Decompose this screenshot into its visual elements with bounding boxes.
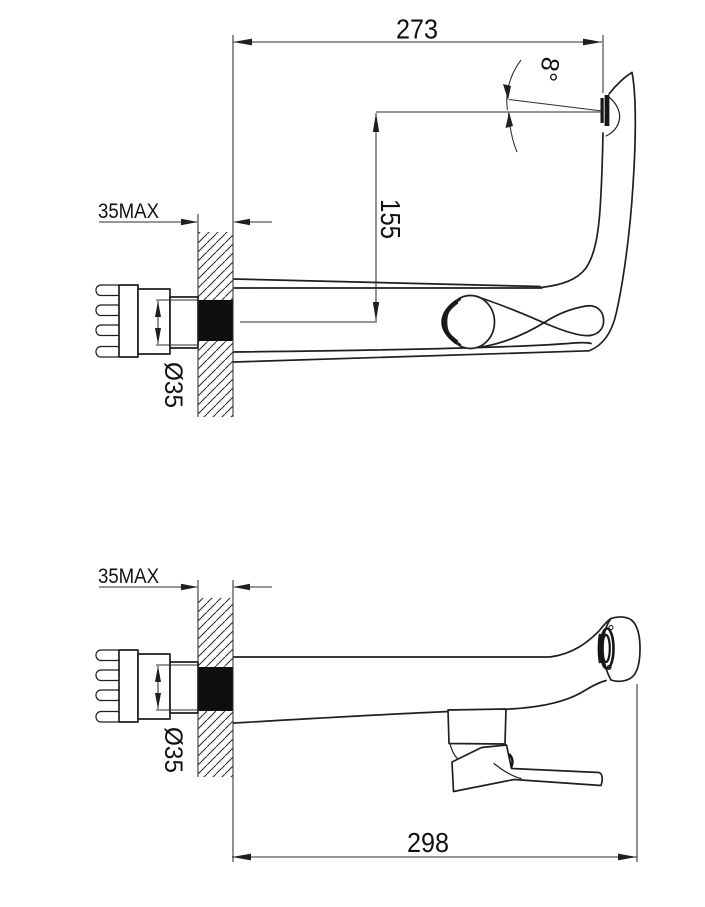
handle-blade-end-cap [586, 306, 604, 336]
faucet-body [234, 73, 635, 363]
dimension-35max-bottom: 35MAX [98, 564, 272, 590]
dim-diameter-label: Ø35 [159, 727, 187, 773]
valve-assembly [96, 650, 198, 722]
riser-outer-edge [589, 73, 635, 351]
angle-arc-upper [507, 60, 521, 110]
dimension-angle-8deg: 8° [503, 55, 602, 152]
dim-length-label: 298 [407, 827, 449, 858]
dim-width-label: 273 [396, 14, 438, 45]
handle-outline [452, 745, 602, 792]
connector-neck [170, 662, 198, 713]
pipe-section-block [198, 667, 233, 711]
arrowhead-right-icon [618, 854, 637, 861]
spout-end-cap [603, 617, 640, 681]
knob-rib [96, 325, 122, 336]
dim-height-label: 155 [375, 199, 406, 239]
knob-rib [96, 670, 122, 681]
knob-rib [96, 712, 122, 723]
dim-wall-label: 35MAX [98, 564, 159, 588]
dim-wall-label: 35MAX [98, 199, 159, 223]
dimension-155: 155 [240, 112, 602, 322]
pipe-section-block [198, 300, 233, 341]
arrowhead-left-icon [233, 584, 250, 590]
arrowhead-left-icon [232, 854, 251, 861]
spout-nose [609, 73, 632, 95]
connector-neck [170, 297, 198, 348]
spout-top-edge [234, 279, 540, 287]
arrowhead-left-icon [233, 219, 250, 225]
spout-top-edge [234, 619, 611, 658]
arc-arrowhead-icon [506, 112, 514, 128]
dimension-35max-top: 35MAX [98, 199, 272, 225]
wall-hatch [198, 232, 233, 300]
dim-angle-label: 8° [533, 55, 565, 83]
aerator-housing [605, 95, 610, 126]
arrowhead-down-icon [373, 302, 379, 321]
dim-diameter-label: Ø35 [159, 362, 187, 408]
wall-section [198, 35, 233, 417]
knob-body [119, 650, 138, 722]
arrowhead-up-icon [373, 113, 379, 132]
riser-inner-edge [541, 133, 603, 288]
spout-bottom-edge-inner [234, 343, 591, 352]
arrowhead-left-icon [233, 39, 252, 46]
angle-ray [509, 100, 602, 112]
view-spout-lowered: 35MAX Ø35 298 [96, 564, 640, 862]
spout-bottom-edge [234, 681, 606, 724]
drawing-sheet: 273 155 8° 35MAX [0, 0, 705, 907]
knob-rib [96, 347, 122, 358]
wall-hatch [198, 598, 233, 667]
cartridge-housing [448, 709, 506, 744]
view-spout-raised: 273 155 8° 35MAX [96, 14, 635, 418]
aerator-ring-shade [599, 634, 600, 663]
knob-rib [96, 690, 122, 701]
connector-collar [138, 654, 170, 719]
wall-section [198, 580, 233, 862]
valve-assembly [96, 285, 198, 357]
arrowhead-right-icon [181, 219, 198, 225]
handle-lever [452, 745, 602, 792]
wall-hatch [198, 341, 233, 417]
arrowhead-right-icon [181, 584, 198, 590]
arrowhead-right-icon [583, 39, 602, 46]
handle-blade-upper-curve [479, 306, 586, 348]
knob-body [119, 285, 138, 357]
wall-hatch [198, 711, 233, 777]
handle-lever [444, 296, 604, 349]
knob-rib [96, 305, 122, 316]
technical-drawing-canvas: 273 155 8° 35MAX [0, 0, 705, 907]
connector-collar [138, 289, 170, 354]
dimension-273: 273 [233, 14, 603, 94]
faucet-body [234, 617, 640, 792]
knob-rib [96, 650, 122, 661]
knob-rib [96, 285, 122, 296]
spout-bottom-edge [234, 351, 589, 362]
